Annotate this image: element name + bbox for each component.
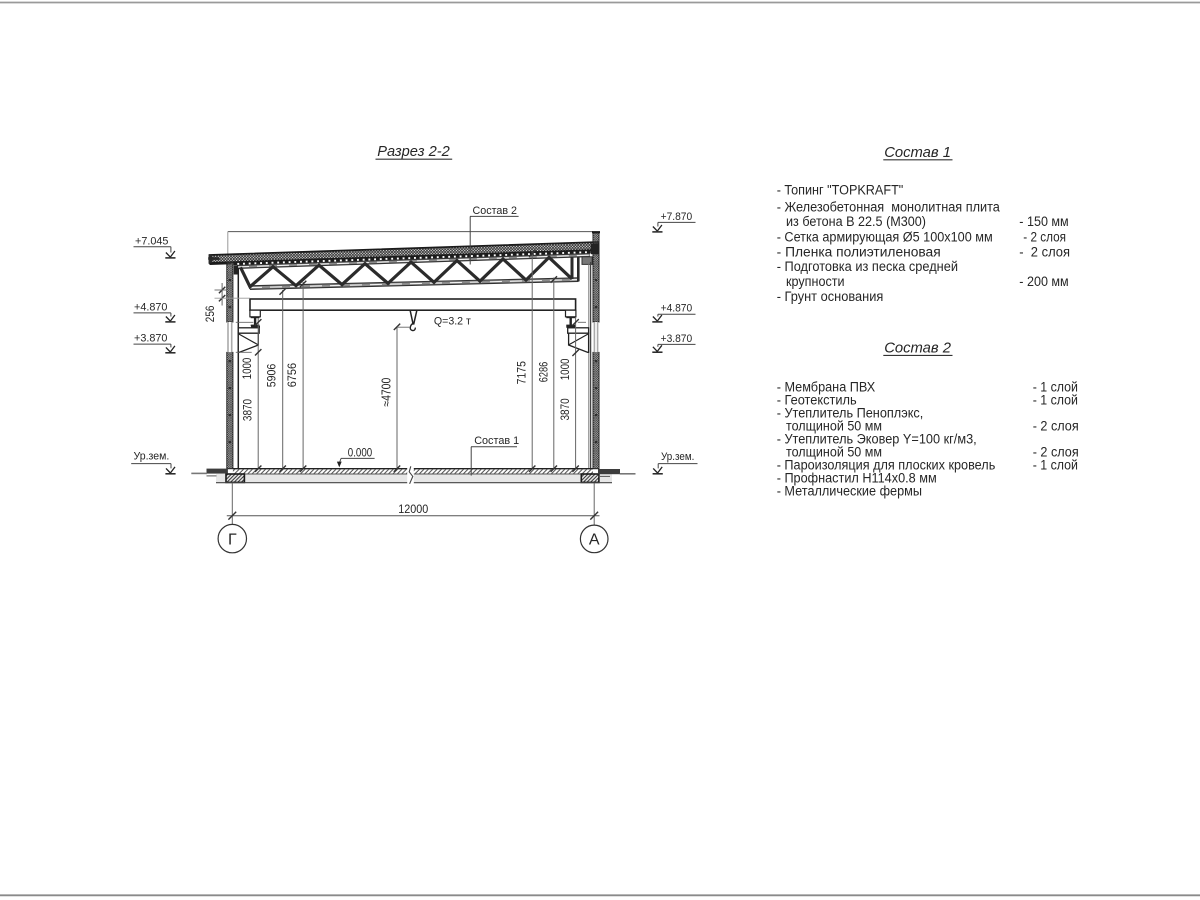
svg-text:- Железобетонная монолитная п: - Железобетонная монолитная плита [777,200,1001,215]
svg-text:- 2 слоя: - 2 слоя [1019,245,1070,260]
svg-text:+4.870: +4.870 [134,301,167,313]
svg-text:- 1 слой: - 1 слой [1033,392,1078,407]
svg-text:- 1 слой: - 1 слой [1033,458,1078,473]
svg-text:Разрез 2-2: Разрез 2-2 [377,143,450,160]
svg-text:Состав 2: Состав 2 [473,205,518,217]
svg-text:Ур.зем.: Ур.зем. [134,451,170,463]
svg-text:- 150 мм: - 150 мм [1019,214,1068,229]
svg-text:- Сетка армирующая Ø5 100x100: - Сетка армирующая Ø5 100x100 мм [777,229,993,244]
svg-text:- Подготовка из песка средней: - Подготовка из песка средней [777,259,958,274]
svg-text:≈4700: ≈4700 [380,378,394,407]
svg-text:+7.870: +7.870 [661,211,693,223]
svg-text:256: 256 [203,305,217,322]
svg-text:+3.870: +3.870 [134,333,167,345]
svg-text:+3.870: +3.870 [661,333,693,345]
svg-text:- 200 мм: - 200 мм [1019,274,1068,289]
svg-text:6756: 6756 [285,363,299,388]
svg-text:Q=3.2 т: Q=3.2 т [434,316,471,328]
svg-text:3870: 3870 [240,399,254,421]
svg-text:7175: 7175 [514,361,528,385]
svg-text:0.000: 0.000 [348,446,373,460]
svg-text:Состав 1: Состав 1 [884,144,951,161]
svg-text:- Пленка полиэтиленовая: - Пленка полиэтиленовая [777,245,941,260]
svg-text:- Грунт основания: - Грунт основания [777,289,884,304]
svg-text:А: А [589,532,600,549]
svg-text:+4.870: +4.870 [661,303,693,315]
svg-text:из бетона В 22.5 (М300): из бетона В 22.5 (М300) [786,214,926,229]
svg-text:Ур.зем.: Ур.зем. [661,451,694,463]
svg-text:1000: 1000 [240,357,254,379]
svg-text:- Топинг "TOPKRAFT": - Топинг "TOPKRAFT" [777,183,904,198]
svg-text:Состав 1: Состав 1 [474,435,519,447]
svg-text:5906: 5906 [264,363,278,387]
svg-text:Г: Г [228,531,237,548]
svg-text:- 2 слоя: - 2 слоя [1023,229,1066,244]
svg-text:3870: 3870 [558,398,572,420]
svg-text:- 2 слоя: - 2 слоя [1033,419,1079,434]
svg-text:12000: 12000 [398,502,428,516]
svg-text:1000: 1000 [558,358,572,380]
svg-text:Состав 2: Состав 2 [884,340,951,357]
svg-text:- Металлические фермы: - Металлические фермы [777,484,922,499]
svg-text:6286: 6286 [537,362,551,383]
svg-text:+7.045: +7.045 [135,235,168,247]
svg-text:крупности: крупности [786,274,845,289]
